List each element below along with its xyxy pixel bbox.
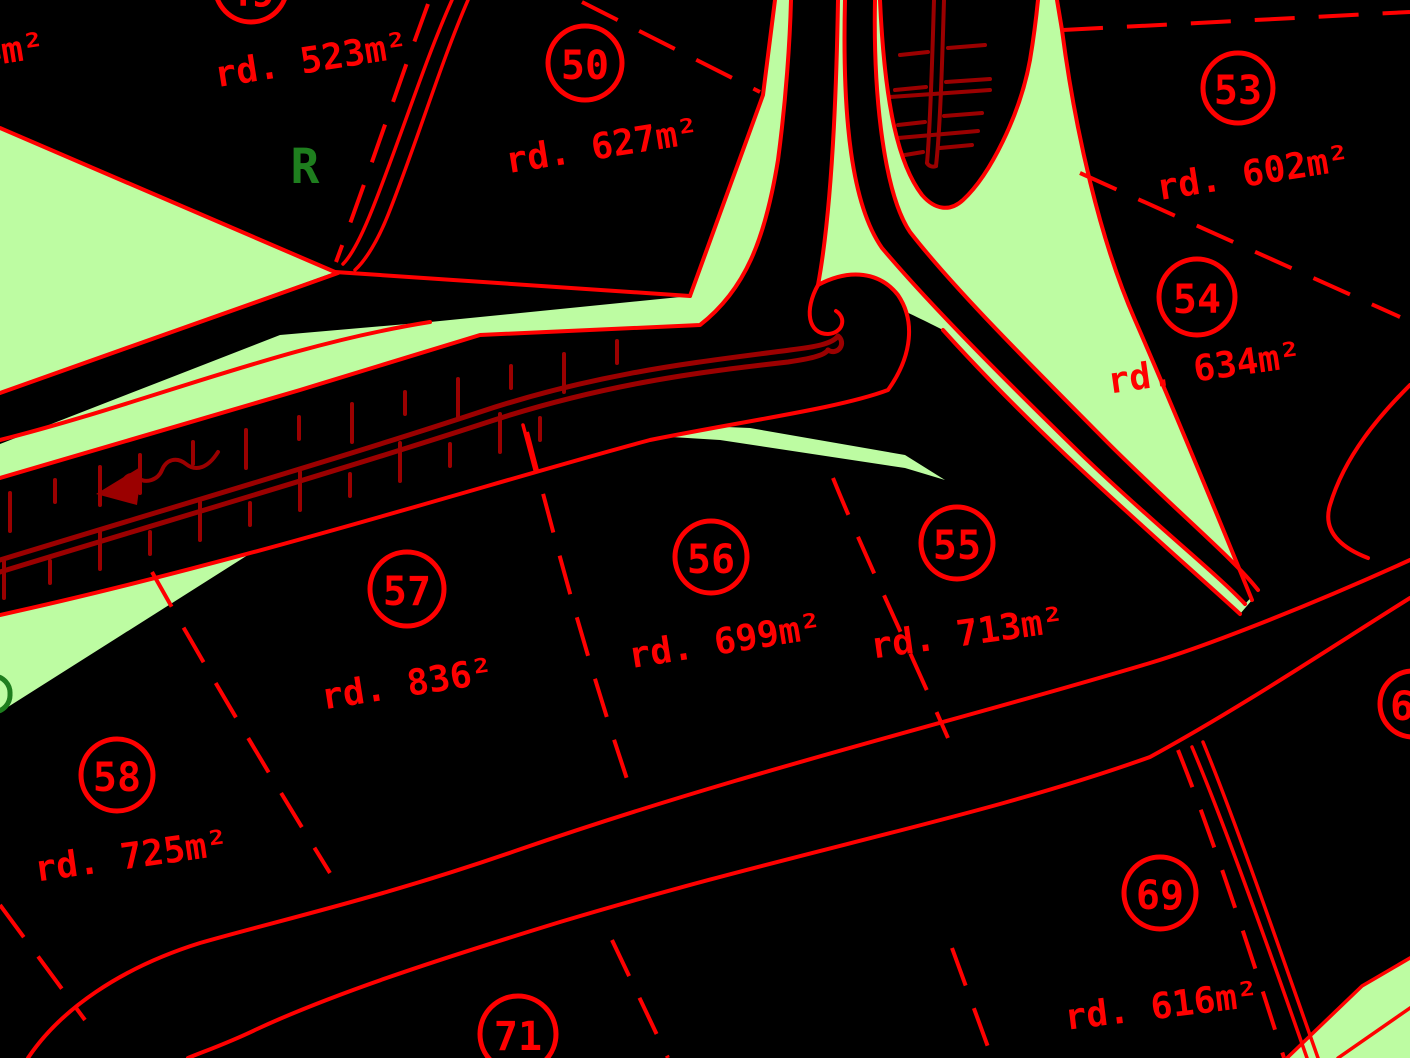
lot-55-marker: 55 rd. 713m² xyxy=(868,507,1067,667)
lot-53-marker: 53 rd. 602m² xyxy=(1154,53,1353,209)
lot-58-marker: 58 rd. 725m² xyxy=(32,739,231,890)
lot-56-number: 56 xyxy=(687,537,735,583)
lot-57-area-label: rd. 836² xyxy=(318,651,496,719)
lot-57-marker: 57 rd. 836² xyxy=(318,552,496,718)
lot50-south-boundary xyxy=(335,272,690,296)
lot-57-number: 57 xyxy=(383,569,431,615)
partial-area-label-topleft: 4m² xyxy=(0,25,48,76)
cad-map-canvas[interactable]: R 49 rd. 523m² 4m² 50 rd. 627m² 53 rd. 6… xyxy=(0,0,1410,1058)
lot-56-area-label: rd. 699m² xyxy=(626,606,825,677)
reserve-letter-label: R xyxy=(291,139,320,195)
lot-58-number: 58 xyxy=(93,755,141,801)
lot54-east-boundary xyxy=(1328,385,1410,558)
lot57-58-dashed-boundary xyxy=(152,572,330,873)
lot-69-area-label: rd. 616m² xyxy=(1062,974,1261,1038)
lot-6x-number: 6 xyxy=(1390,684,1410,730)
parcel-map-drawing: R 49 rd. 523m² 4m² 50 rd. 627m² 53 rd. 6… xyxy=(0,0,1410,1058)
lot69-west-dashed-boundary xyxy=(952,948,992,1058)
lot-69-marker: 69 rd. 616m² xyxy=(1062,857,1261,1039)
lot-71-marker: 71 xyxy=(480,996,556,1058)
lot71-east-dashed-boundary xyxy=(612,940,668,1058)
lot-54-number: 54 xyxy=(1173,277,1221,323)
lot56-57-dashed-boundary xyxy=(527,432,630,788)
lot-69-number: 69 xyxy=(1136,873,1184,919)
lot-49-marker: 49 rd. 523m² xyxy=(212,0,411,96)
lot-53-number: 53 xyxy=(1214,68,1262,114)
lot-55-number: 55 xyxy=(933,523,981,569)
lot-49-area-label: rd. 523m² xyxy=(212,25,411,96)
green-corner-southeast xyxy=(1287,958,1410,1058)
lot53-north-dashed-boundary xyxy=(1063,12,1410,30)
lot-55-area-label: rd. 713m² xyxy=(868,600,1067,668)
lot-58-area-label: rd. 725m² xyxy=(32,823,231,891)
lot-53-area-label: rd. 602m² xyxy=(1154,138,1353,209)
lot-6x-marker-partial: 6 xyxy=(1380,671,1410,737)
lot-50-number: 50 xyxy=(561,43,609,89)
lot-71-number: 71 xyxy=(494,1014,542,1058)
lot-49-number: 49 xyxy=(227,0,275,16)
lot58-west-dashed-boundary xyxy=(0,905,85,1020)
lot-50-area-label: rd. 627m² xyxy=(503,111,702,182)
lot-56-marker: 56 rd. 699m² xyxy=(626,521,825,677)
